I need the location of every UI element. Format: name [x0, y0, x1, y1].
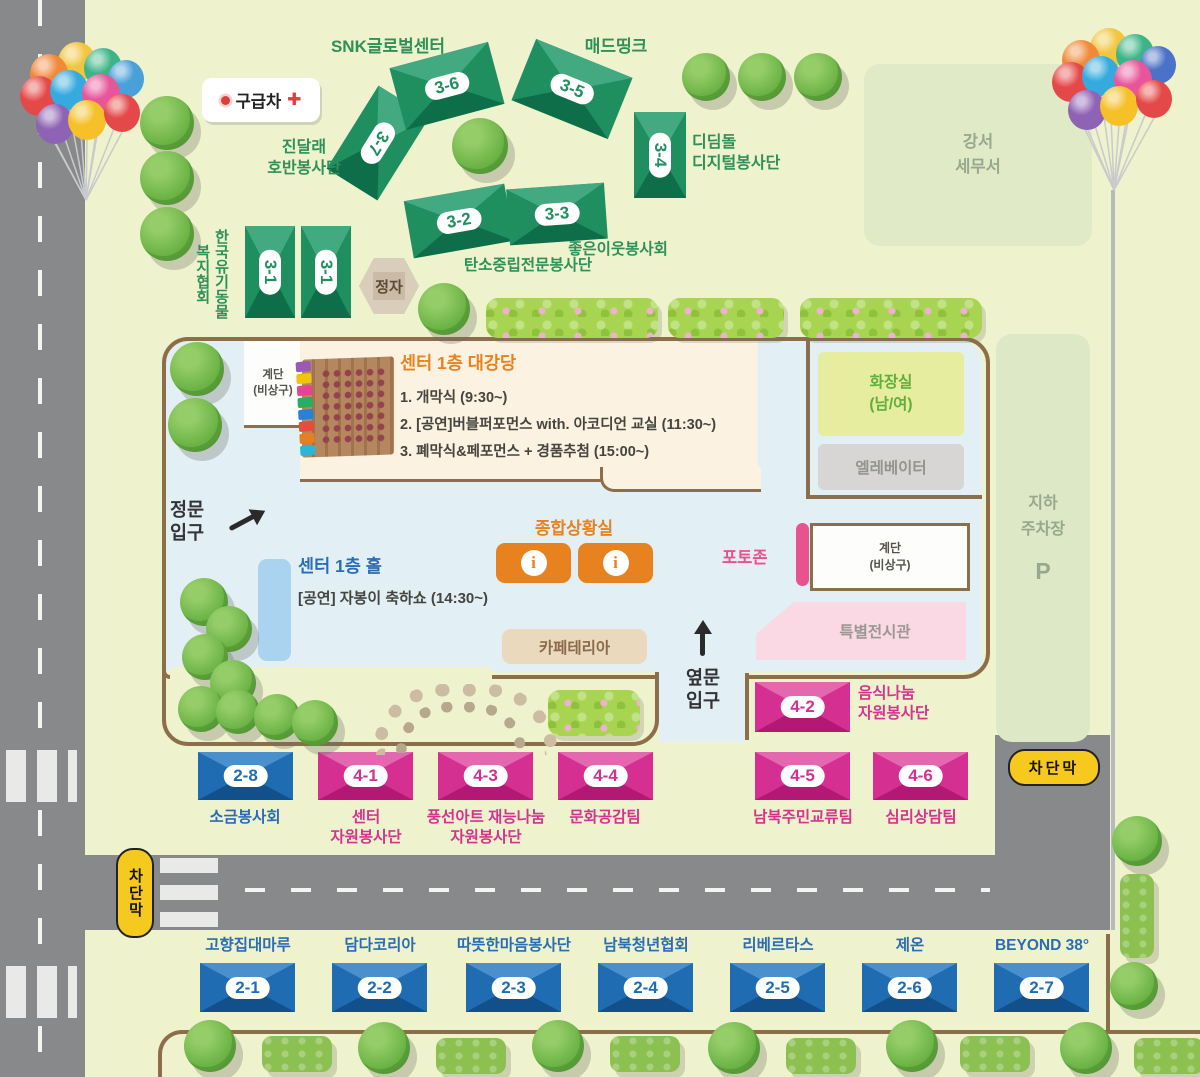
booth-3-7-label: 진달래 호반봉사단	[244, 138, 364, 180]
tree	[1110, 962, 1158, 1010]
info-center-label: 종합상황실	[492, 514, 656, 539]
tree	[1112, 816, 1162, 866]
crosswalk	[6, 966, 77, 1018]
tree	[452, 118, 508, 174]
info-desk-1: i	[496, 543, 571, 583]
tree	[358, 1022, 410, 1074]
hedge	[262, 1036, 332, 1072]
hedge	[960, 1036, 1030, 1072]
parking-label: 지하 주차장	[1021, 491, 1065, 542]
hedge	[1120, 874, 1154, 958]
photo-zone-label: 포토존	[722, 544, 768, 568]
booth-4-4-label: 문화공감팀	[545, 808, 665, 828]
parking-symbol: P	[1035, 558, 1050, 585]
pavilion-label: 정자	[375, 276, 403, 297]
flower-hedge	[486, 298, 658, 338]
tree	[886, 1020, 938, 1072]
tree	[738, 53, 786, 101]
booth-4-5-label: 남북주민교류팀	[738, 808, 868, 828]
booth-2-1: 2-1	[200, 963, 295, 1012]
tree	[168, 398, 222, 452]
tree	[184, 1020, 236, 1072]
booth-4-6: 4-6	[873, 752, 968, 800]
cafeteria-label: 카페테리아	[539, 636, 610, 658]
stairs-label: 계단 (비상구)	[869, 540, 910, 574]
booth-4-2: 4-2	[755, 682, 850, 732]
side-gate-arrow-icon	[700, 632, 705, 656]
tree	[170, 342, 224, 396]
booth-2-1-label: 고향집대마루	[178, 936, 318, 956]
info-desk-2: i	[578, 543, 653, 583]
booth-2-2: 2-2	[332, 963, 427, 1012]
booth-3-1b: 3-1	[301, 226, 351, 318]
hedge	[436, 1038, 506, 1074]
info-icon: i	[521, 550, 547, 576]
flower-hedge	[800, 298, 982, 338]
side-path	[1106, 934, 1110, 1034]
ambulance-icon: 구급차 ✚	[202, 78, 320, 122]
tree	[1060, 1022, 1112, 1074]
booth-2-8-label: 소금봉사회	[195, 808, 295, 828]
booth-4-1: 4-1	[318, 752, 413, 800]
road-bottom	[85, 855, 1110, 930]
balloon-bouquet-right	[1052, 28, 1187, 198]
booth-3-4: 3-4	[634, 112, 686, 198]
booth-4-2-label: 음식나눔 자원봉사단	[858, 684, 978, 724]
booth-3-3: 3-3	[506, 183, 608, 246]
booth-4-4: 4-4	[558, 752, 653, 800]
tree	[292, 700, 338, 746]
crosswalk	[160, 858, 218, 927]
hall-event: [공연] 자봉이 축하쇼 (14:30~)	[298, 587, 488, 608]
booth-4-5: 4-5	[755, 752, 850, 800]
auditorium-schedule-3: 3. 폐막식&페포먼스 + 경품추첨 (15:00~)	[400, 440, 649, 461]
booth-2-8: 2-8	[198, 752, 293, 800]
booth-4-1-label: 센터 자원봉사단	[318, 808, 414, 848]
booth-3-4-label: 디딤돌 디지털봉사단	[692, 133, 822, 175]
road-center-line	[245, 888, 990, 892]
festival-map: 강서 세무서 지하 주차장 P 계단 (비상구) 센터 1층 대강당 1. 개막…	[0, 0, 1200, 1077]
auditorium-schedule-1: 1. 개막식 (9:30~)	[400, 386, 507, 407]
special-exhibition-label: 특별전시관	[839, 620, 910, 642]
stairs-label: 계단 (비상구)	[253, 367, 292, 399]
hedge	[1134, 1038, 1200, 1074]
ambulance-label: 구급차	[236, 88, 282, 112]
booth-4-3-label: 풍선아트 재능나눔 자원봉사단	[416, 808, 556, 848]
tax-office-label: 강서 세무서	[955, 130, 1001, 180]
crosswalk	[6, 750, 77, 802]
barrier-sign-left: 차단막	[116, 848, 154, 938]
door-bar	[258, 559, 291, 661]
booth-3-2: 3-2	[404, 184, 515, 259]
auditorium-stage-icon	[302, 356, 394, 457]
cafeteria: 카페테리아	[502, 629, 647, 664]
stairs-room-right: 계단 (비상구)	[810, 523, 970, 591]
tree	[532, 1020, 584, 1072]
flower-hedge	[548, 690, 640, 736]
tree	[682, 53, 730, 101]
booth-2-5-label: 리베르타스	[708, 936, 848, 956]
booth-3-1-label: 한국유기동물 복지협회	[192, 218, 230, 330]
tree	[794, 53, 842, 101]
booth-2-6-label: 제온	[840, 936, 980, 956]
red-cross-icon: ✚	[287, 90, 301, 110]
main-gate-label: 정문 입구	[170, 498, 204, 544]
booth-2-4: 2-4	[598, 963, 693, 1012]
booth-2-4-label: 남북청년협회	[576, 936, 716, 956]
restroom-label: 화장실 (남/여)	[869, 372, 912, 417]
barrier-sign-right: 차단막	[1008, 749, 1100, 786]
booth-2-6: 2-6	[862, 963, 957, 1012]
booth-4-3: 4-3	[438, 752, 533, 800]
side-gate-label: 옆문 입구	[673, 666, 733, 712]
tree	[708, 1022, 760, 1074]
booth-4-6-label: 심리상담팀	[861, 808, 981, 828]
hall-title: 센터 1층 홀	[298, 553, 382, 578]
restroom: 화장실 (남/여)	[818, 352, 964, 436]
pavilion: 정자	[359, 258, 419, 314]
balloon-pole	[1111, 190, 1115, 930]
booth-3-2-label: 탄소중립전문봉사단	[438, 256, 618, 276]
underground-parking: 지하 주차장 P	[996, 334, 1090, 742]
auditorium-title: 센터 1층 대강당	[400, 350, 516, 375]
elevator-label: 엘레베이터	[855, 456, 926, 478]
booth-2-3: 2-3	[466, 963, 561, 1012]
auditorium-schedule-2: 2. [공연]버블퍼포먼스 with. 아코디언 교실 (11:30~)	[400, 413, 716, 434]
flower-hedge	[668, 298, 784, 338]
balloon-bouquet-left	[20, 42, 155, 212]
elevator: 엘레베이터	[818, 444, 964, 490]
booth-3-6-label: SNK글로벌센터	[308, 36, 468, 58]
booth-2-7-label: BEYOND 38°	[972, 936, 1112, 956]
booth-2-3-label: 따뜻한마음봉사단	[444, 936, 584, 956]
info-icon: i	[603, 550, 629, 576]
hedge	[786, 1038, 856, 1074]
booth-3-5-label: 매드띵크	[556, 36, 676, 58]
tree	[418, 283, 470, 335]
special-exhibition: 특별전시관	[756, 602, 966, 660]
booth-2-2-label: 담다코리아	[310, 936, 450, 956]
booth-2-5: 2-5	[730, 963, 825, 1012]
photo-zone-bar	[796, 523, 809, 586]
hedge	[610, 1036, 680, 1072]
tree	[140, 207, 194, 261]
booth-2-7: 2-7	[994, 963, 1089, 1012]
booth-3-1a: 3-1	[245, 226, 295, 318]
